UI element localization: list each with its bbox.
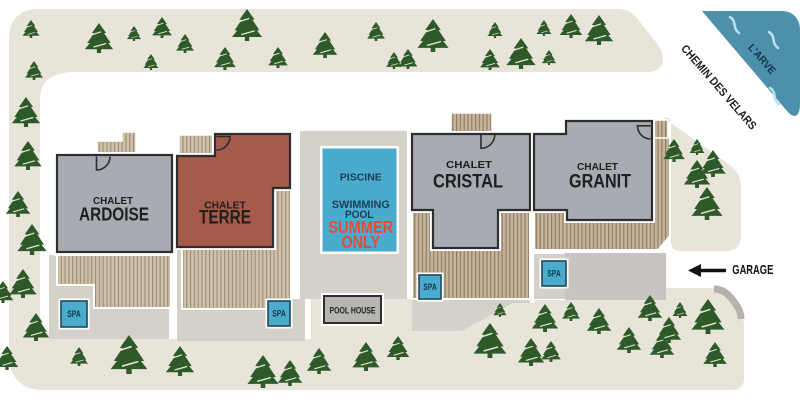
svg-text:GARAGE: GARAGE [732,262,773,277]
svg-text:TERRE: TERRE [199,207,251,228]
svg-text:PISCINE: PISCINE [340,171,382,183]
svg-text:POOL HOUSE: POOL HOUSE [330,305,376,316]
svg-text:SPA: SPA [547,269,561,279]
svg-text:CHALET: CHALET [446,159,493,171]
svg-text:SPA: SPA [272,309,286,319]
svg-text:ONLY: ONLY [342,232,381,252]
svg-text:SPA: SPA [423,282,437,292]
svg-text:ARDOISE: ARDOISE [79,204,149,225]
svg-text:SPA: SPA [67,309,81,319]
svg-text:CRISTAL: CRISTAL [433,171,503,193]
svg-text:GRANIT: GRANIT [569,171,631,193]
